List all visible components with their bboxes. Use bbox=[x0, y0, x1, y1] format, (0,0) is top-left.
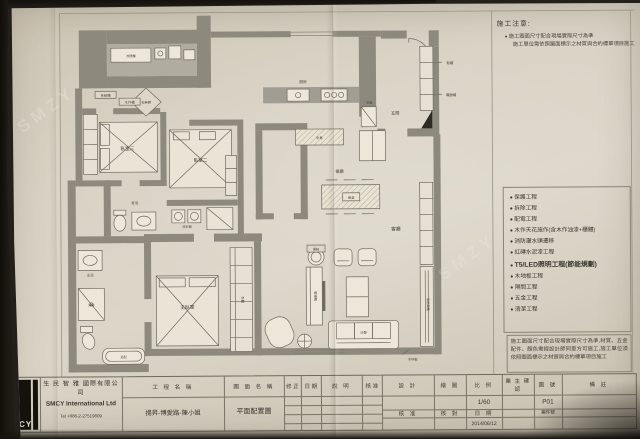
label-tv: 電視櫃 bbox=[313, 291, 318, 301]
label-living: 客廳 bbox=[391, 226, 401, 233]
label-bathm: 主浴 bbox=[87, 272, 94, 277]
label-wardrobe: 衣櫃 bbox=[240, 296, 245, 303]
bottom-note-box: 施工圖面尺寸配合現場實際尺寸為準,材質、五金配件、顏色需經設計師同意方可施工,施… bbox=[507, 334, 632, 373]
work-item: 拆除工程 bbox=[510, 203, 630, 215]
label-bathg: 客浴 bbox=[131, 200, 138, 205]
design-label: 設 計 bbox=[382, 377, 434, 393]
label-tub: 浴缸 bbox=[120, 354, 127, 359]
work-item: 配電工程 bbox=[510, 214, 630, 226]
label-fridge: 冰箱 bbox=[366, 100, 373, 105]
work-item: 保護工程 bbox=[510, 192, 630, 204]
check-label: 核 對 bbox=[434, 409, 466, 417]
project-label: 工 程 名 稱 bbox=[124, 379, 222, 396]
work-item: 五金工程 bbox=[510, 293, 630, 305]
label-shoe: 鞋櫃 bbox=[446, 60, 453, 65]
work-item: 隔間工程 bbox=[510, 282, 630, 294]
construction-notes-title: 施工注意: bbox=[497, 18, 531, 28]
work-items-box: 保護工程 拆除工程 配電工程 木作天花施作(含木作油漆+櫃體) 消防灑水頭遷移 … bbox=[503, 186, 632, 333]
label-island: 中島 bbox=[316, 135, 323, 140]
photo-shadow-corner bbox=[490, 369, 640, 439]
work-item: T5/LED照明工程(節能規劃) bbox=[510, 259, 630, 272]
drawing-name: 平面配置圖 bbox=[226, 398, 282, 424]
note-line-2: 施工單位需依照圖面標示之材質與合約標單項目施工 bbox=[505, 41, 633, 49]
construction-notes: 施工圖面尺寸配合現場實際尺寸為準 施工單位需依照圖面標示之材質與合約標單項目施工 bbox=[505, 32, 633, 49]
work-item: 清潔工程 bbox=[510, 304, 630, 316]
work-item: 木作天花施作(含木作油漆+櫃體) bbox=[510, 225, 630, 237]
desc-label: 說 明 bbox=[321, 378, 362, 394]
label-chair: 單椅 bbox=[313, 247, 320, 252]
label-appliance: 電器櫃 bbox=[446, 92, 457, 97]
label-entry: 玄關 bbox=[391, 110, 399, 117]
label-tag1: 系統櫃 bbox=[100, 93, 111, 98]
label-laundry: 洗衣機 bbox=[182, 224, 192, 229]
work-item: 木地板工程 bbox=[510, 271, 630, 283]
drawing-label: 圖 面 名 稱 bbox=[226, 378, 282, 394]
label-floor: 木地板 bbox=[408, 356, 418, 361]
rev-date-label: 日 期 bbox=[301, 378, 321, 394]
label-hicab: 系統高櫃 bbox=[426, 298, 431, 312]
work-item: 紅磚水泥漆工程 bbox=[510, 248, 630, 260]
label-diamond: 石英磚 bbox=[141, 100, 151, 105]
rev-approve-label: 核 准 bbox=[362, 378, 382, 394]
logo-text: CY bbox=[19, 420, 32, 429]
label-kitchen: 廚房 bbox=[299, 79, 307, 84]
pantry-corner bbox=[421, 110, 432, 128]
draft-label: 繪 圖 bbox=[434, 377, 466, 393]
work-item: 消防灑水頭遷移 bbox=[510, 236, 630, 248]
label-table: 餐桌 bbox=[348, 195, 355, 200]
label-shower: 淋浴 bbox=[88, 302, 95, 307]
rev-label: 修 正 bbox=[284, 378, 301, 394]
approve-label: 核 准 bbox=[382, 409, 434, 417]
label-counter: 流理檯 bbox=[126, 53, 136, 58]
label-sofa: 沙發 bbox=[360, 330, 367, 335]
logo-bar bbox=[33, 380, 38, 430]
label-tag2: 木作櫃 bbox=[125, 100, 136, 105]
photographed-floorplan-sheet: 流理檯 系統櫃 木作櫃 石英磚 臥室三 臥室二 洗衣機 客浴 主臥室 衣櫃 淋浴… bbox=[0, 0, 640, 439]
project-name: 揚昇-博愛路-陳小姐 bbox=[124, 399, 222, 426]
